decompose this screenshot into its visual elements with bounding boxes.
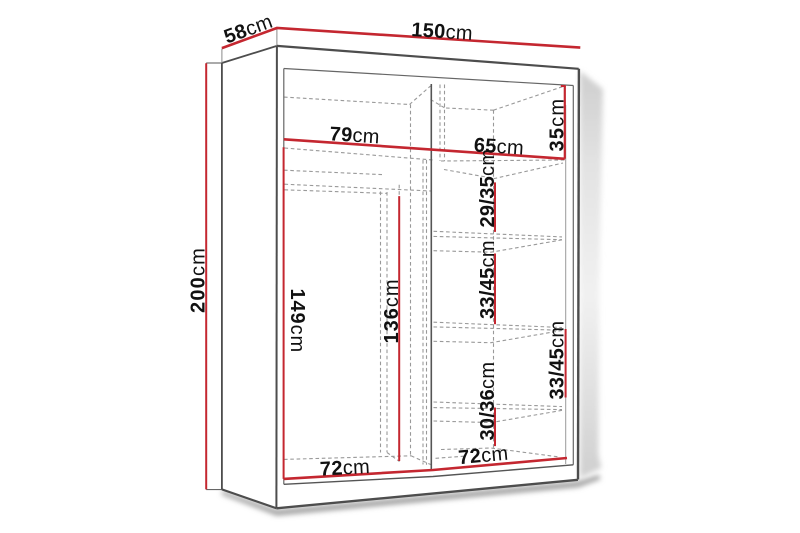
svg-text:30/36cm: 30/36cm <box>477 362 499 441</box>
svg-text:29/35cm: 29/35cm <box>477 149 499 228</box>
svg-text:33/45cm: 33/45cm <box>547 321 569 400</box>
svg-text:79cm: 79cm <box>329 123 380 148</box>
svg-text:33/45cm: 33/45cm <box>477 240 499 319</box>
svg-text:149cm: 149cm <box>286 289 308 354</box>
svg-text:72cm: 72cm <box>457 443 509 470</box>
svg-text:72cm: 72cm <box>319 456 370 481</box>
svg-text:136cm: 136cm <box>381 278 403 343</box>
svg-text:150cm: 150cm <box>411 19 474 45</box>
svg-text:200cm: 200cm <box>188 247 210 313</box>
svg-text:35cm: 35cm <box>546 98 568 152</box>
